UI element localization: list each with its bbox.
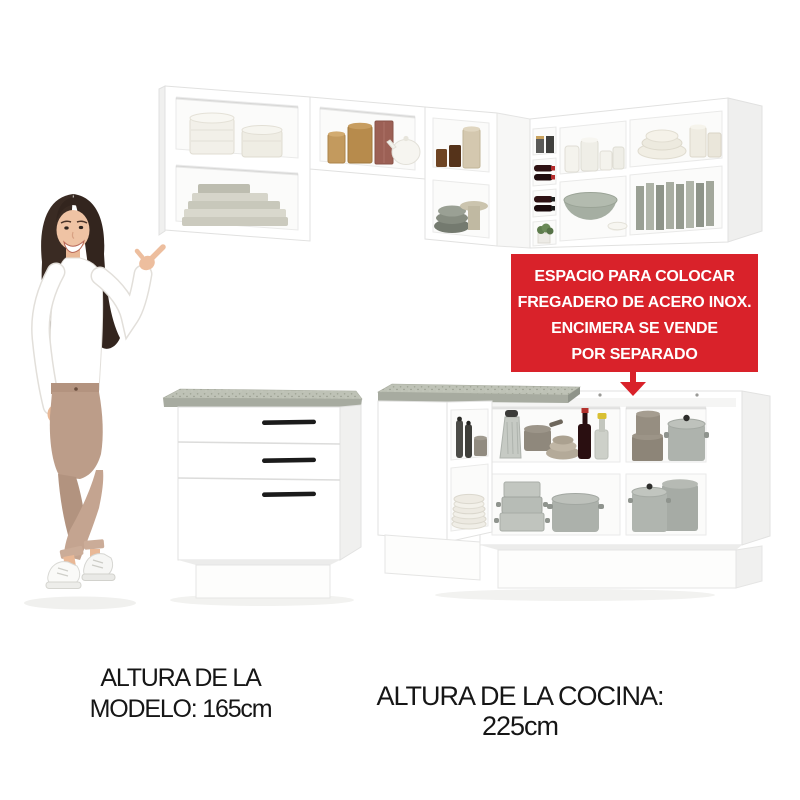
- sink-space-banner: ESPACIO PARA COLOCAR FREGADERO DE ACERO …: [511, 254, 758, 372]
- plinth: [498, 550, 736, 588]
- wall-cabinet-left: [159, 86, 310, 241]
- sneakers: [46, 554, 115, 589]
- wall-cabinet-corner-panel: [497, 113, 530, 248]
- wide-pot: [547, 494, 604, 533]
- wall-cabinet-right: [530, 98, 762, 248]
- kitchen-height-caption: ALTURA DE LA COCINA: 225cm: [340, 681, 700, 741]
- model-photo: [24, 194, 163, 610]
- model-height-line2: MODELO: 165cm: [88, 694, 273, 725]
- trousers: [50, 383, 105, 567]
- down-arrow-icon: [620, 382, 646, 396]
- wall-cabinets: [159, 86, 762, 248]
- kitchen-product-image: ESPACIO PARA COLOCAR FREGADERO DE ACERO …: [0, 0, 800, 800]
- glassware-column: [560, 121, 627, 241]
- base-cabinet-corner: [378, 384, 770, 601]
- plinth: [385, 535, 480, 580]
- stock-pot: [664, 415, 709, 461]
- banner-line: POR SEPARADO: [511, 342, 758, 368]
- model-height-caption: ALTURA DE LA MODELO: 165cm: [88, 663, 273, 725]
- wall-cabinet-jars-section: [425, 107, 497, 246]
- banner-line: ENCIMERA SE VENDE: [511, 316, 758, 342]
- plinth: [196, 565, 330, 598]
- banner-line: FREGADERO DE ACERO INOX.: [511, 290, 758, 316]
- stacked-canisters: [632, 411, 663, 461]
- countertop: [163, 389, 362, 399]
- sink-base-section: [480, 391, 770, 588]
- base-cabinet-drawers: [163, 389, 362, 606]
- wall-cabinet-bridge: [310, 97, 425, 179]
- plates-stack: [452, 494, 486, 529]
- banner-line: ESPACIO PARA COLOCAR: [511, 264, 758, 290]
- model-height-line1: ALTURA DE LA: [88, 663, 273, 694]
- face: [57, 210, 90, 250]
